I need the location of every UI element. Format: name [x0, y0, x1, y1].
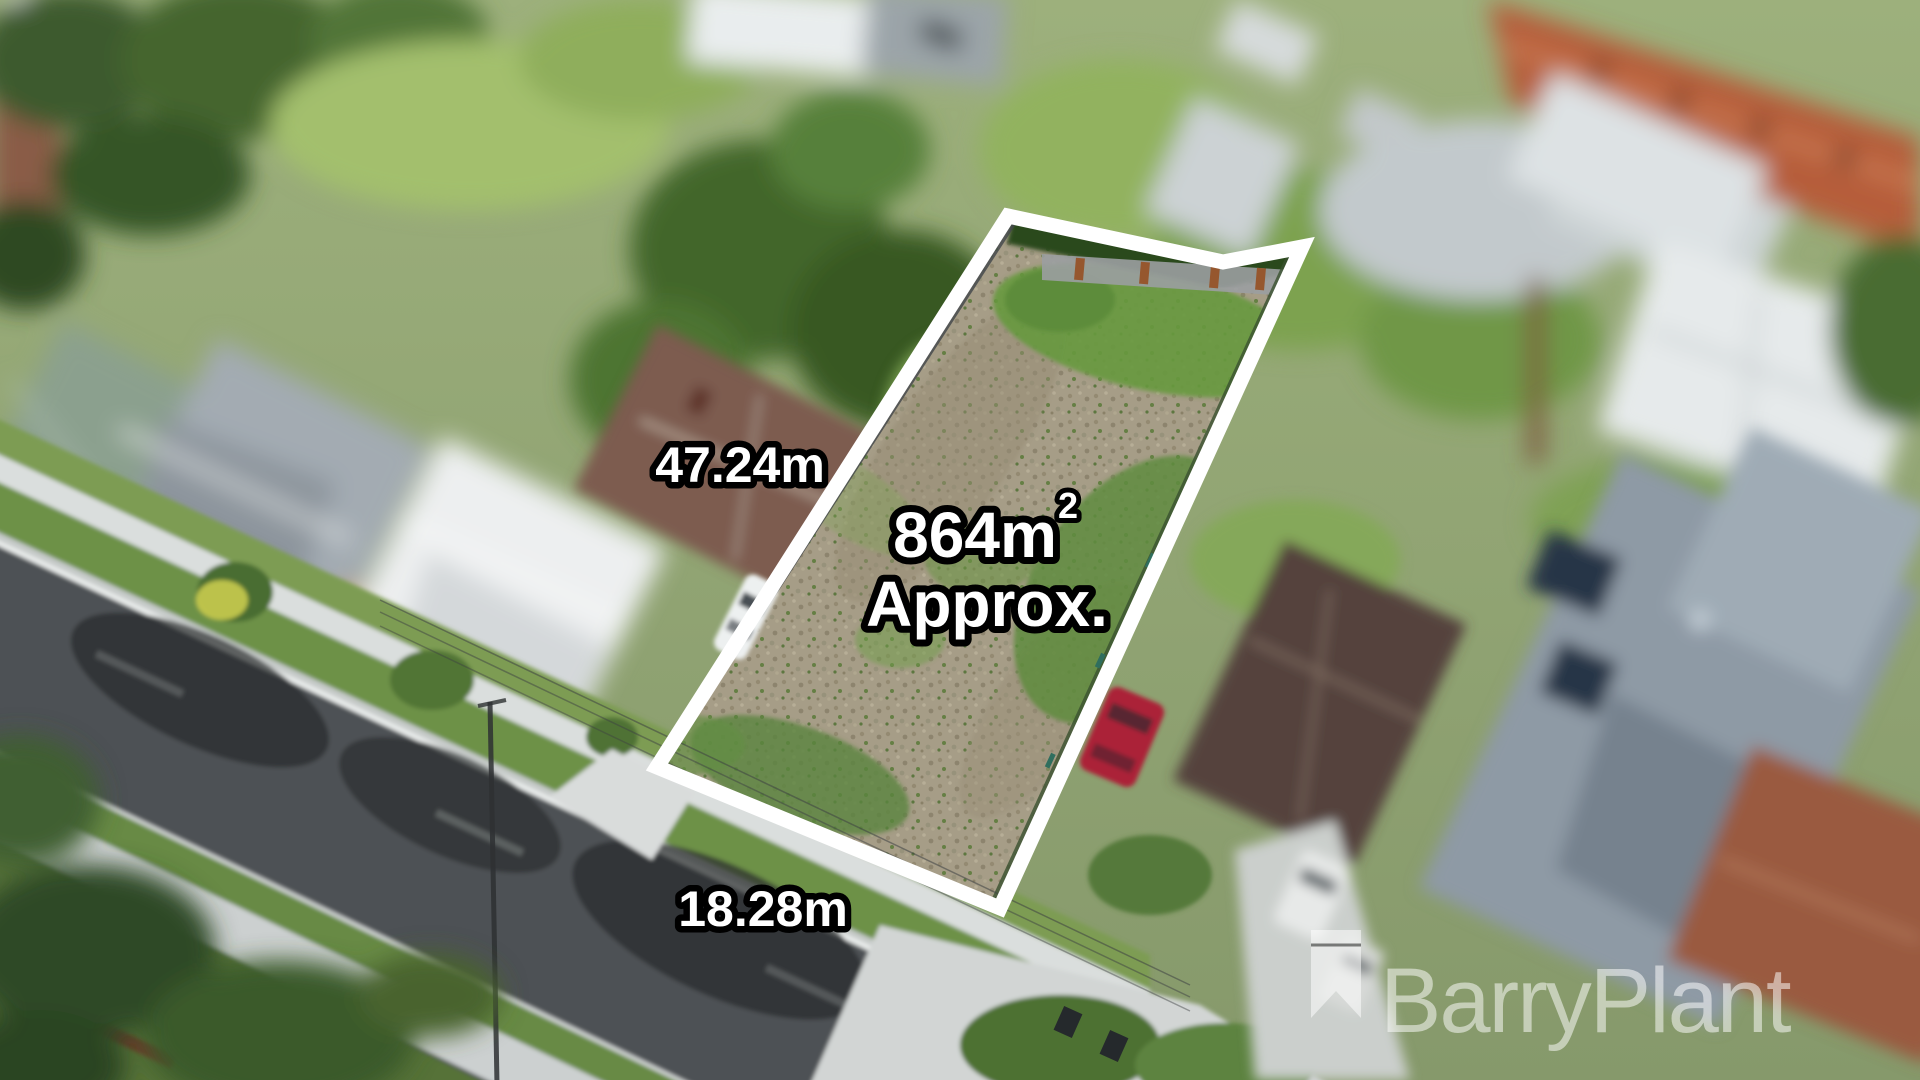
- side-length-label: 47.24m: [655, 437, 825, 493]
- area-qualifier-label: Approx.: [866, 568, 1108, 640]
- area-label: 864m: [893, 499, 1057, 571]
- watermark-brand-text: BarryPlant: [1380, 950, 1791, 1052]
- frontage-length-label: 18.28m: [678, 881, 848, 937]
- aerial-photo: 47.24m 864m 2 Approx. 18.28m BarryPlant: [0, 0, 1920, 1080]
- area-superscript: 2: [1058, 485, 1078, 526]
- aerial-photo-page: 47.24m 864m 2 Approx. 18.28m BarryPlant: [0, 0, 1920, 1080]
